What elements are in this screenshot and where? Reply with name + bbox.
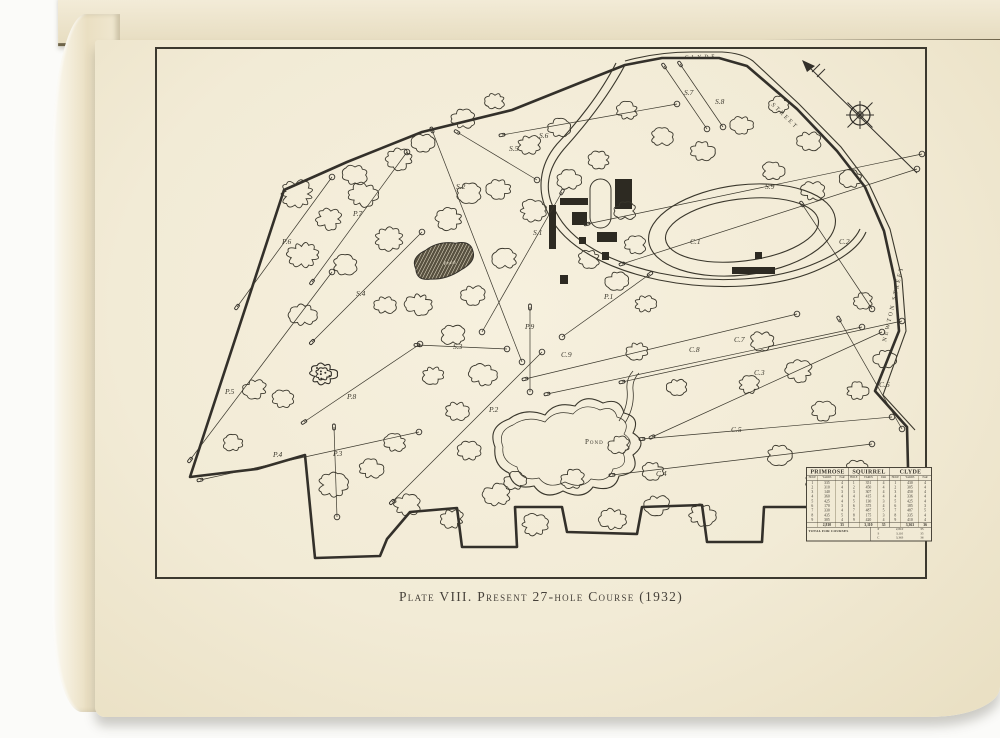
scorecard-cell: PAR — [919, 476, 931, 480]
fairway-line — [482, 192, 562, 332]
fairway-line — [457, 132, 537, 180]
building — [579, 237, 586, 244]
tree-cluster — [598, 508, 626, 529]
hole-label: S.9 — [765, 182, 775, 191]
tree-cluster — [522, 513, 548, 535]
tree-cluster — [223, 434, 242, 450]
fairway-line — [839, 319, 902, 429]
tree-cluster — [411, 134, 435, 152]
course-boundary — [190, 58, 909, 558]
hole-label: S.4 — [356, 289, 366, 298]
hole-label: P.7 — [352, 209, 362, 218]
scorecard-cell: YARDS — [818, 476, 836, 480]
building — [597, 232, 617, 242]
fairway-lines — [187, 61, 925, 520]
tree-cluster — [384, 434, 406, 452]
hole-label: C.8 — [689, 345, 700, 354]
hole-label: C.7 — [734, 335, 745, 344]
tree-cluster — [272, 390, 294, 408]
scorecard-total-row: 3,36336 — [890, 522, 931, 527]
fairway-line — [200, 432, 419, 480]
tree-cluster — [319, 472, 349, 497]
building — [755, 252, 762, 259]
hole-label: P.6 — [281, 237, 291, 246]
building — [560, 275, 568, 284]
hole-label: S.6 — [539, 131, 549, 140]
tree-cluster — [616, 101, 637, 119]
tree-cluster — [457, 441, 481, 460]
fairway-line — [312, 232, 422, 342]
tree-cluster — [763, 162, 785, 180]
tree-cluster — [374, 297, 396, 314]
north-arrow-icon — [802, 60, 917, 173]
tree-cluster — [605, 272, 629, 290]
hole-label: C.1 — [690, 237, 701, 246]
mound-dot — [320, 370, 322, 372]
scorecard-cell: PAR — [877, 476, 889, 480]
tree-cluster — [652, 128, 674, 146]
fairway-line — [547, 327, 862, 394]
hole-label: C.4 — [656, 469, 667, 478]
tree-cluster — [286, 242, 318, 267]
clubhouse-buildings — [549, 179, 775, 284]
scorecard-cell: 35 — [836, 523, 848, 528]
hole-label: P.9 — [524, 322, 534, 331]
tree-cluster — [557, 170, 582, 190]
tree-cluster — [801, 182, 825, 201]
building — [732, 267, 775, 274]
scorecard-cell: HOLE — [849, 476, 860, 480]
tree-cluster — [334, 254, 357, 275]
scorecard-cell: 420 — [859, 517, 877, 522]
tree-cluster — [847, 382, 869, 400]
scorecard-cell — [890, 523, 901, 528]
hole-label: P.1 — [603, 292, 613, 301]
scorecard-cell — [807, 523, 818, 528]
scorecard-course: CLYDEHOLEYARDSPAR14304230543450443364542… — [890, 468, 931, 527]
mound-dot — [316, 367, 318, 369]
mound-outline — [310, 363, 338, 385]
scorecard-cell: 305 — [818, 517, 836, 522]
scorecard-cell: PAR — [836, 476, 848, 480]
scorecard-cell: 36 — [919, 523, 931, 528]
small-oval-field — [590, 179, 611, 228]
scorecard-row: 94204 — [849, 517, 890, 522]
hole-label: S.2 — [456, 182, 466, 191]
book-photo: P.1P.2P.3P.4P.5P.6P.7P.8P.9S.1S.2S.3S.4S… — [0, 0, 1000, 738]
fairway-line — [190, 272, 332, 460]
hole-label: S.3 — [453, 342, 463, 351]
scorecard-cell: YARDS — [859, 476, 877, 480]
fairway-line — [642, 417, 892, 439]
fairway-line — [802, 204, 872, 309]
scorecard-cell: 4 — [877, 517, 889, 522]
tree-clusters — [223, 94, 896, 536]
building — [615, 179, 632, 209]
tree-cluster — [446, 402, 470, 420]
street-label: CLYDE — [685, 54, 718, 61]
scorecard-cell: HOLE — [890, 476, 901, 480]
scorecard-cell: YARDS — [901, 476, 919, 480]
mound-dot — [320, 373, 322, 375]
tree-cluster — [485, 94, 505, 109]
scorecard-cell: 3,363 — [901, 523, 919, 528]
tree-cluster — [739, 376, 759, 394]
tree-cluster — [635, 296, 656, 312]
tree-cluster — [348, 182, 378, 207]
tree-cluster — [588, 151, 609, 169]
hole-label: P.4 — [272, 450, 282, 459]
scorecard-course-name: PRIMROSE — [807, 468, 848, 476]
map-labels: P.1P.2P.3P.4P.5P.6P.7P.8P.9S.1S.2S.3S.4S… — [224, 54, 905, 478]
hole-label: P.8 — [346, 392, 356, 401]
scorecard-cell: 9 — [849, 517, 860, 522]
fairway-line — [664, 66, 707, 129]
scorecard-row: 94104 — [890, 517, 931, 522]
tree-cluster — [375, 227, 402, 251]
tree-cluster — [518, 136, 541, 155]
tree-cluster — [812, 401, 836, 421]
tree-cluster — [461, 286, 485, 306]
scorecard-cell: 36 — [913, 536, 931, 540]
tree-cluster — [520, 199, 546, 222]
hole-label: S.8 — [715, 97, 725, 106]
building — [602, 252, 609, 260]
tree-cluster — [404, 294, 432, 316]
tree-cluster — [548, 118, 571, 136]
scorecard-footer-label: TOTAL FOR COURSES — [807, 528, 870, 541]
mound-dot — [320, 378, 322, 380]
scorecard-cell: 9 — [890, 517, 901, 522]
scorecard-cell: 410 — [901, 517, 919, 522]
scorecard-total-row: 2,81035 — [807, 522, 848, 527]
mound-inner — [316, 368, 331, 380]
tree-cluster — [626, 343, 648, 360]
hole-label: C.2 — [839, 237, 850, 246]
scorecard-course-name: SQUIRREL — [849, 468, 890, 476]
plate-caption: Plate VIII. Present 27-hole Course (1932… — [155, 589, 927, 605]
hole-label: S.7 — [684, 88, 694, 97]
hole-label: C.9 — [561, 350, 572, 359]
tree-cluster — [561, 469, 585, 488]
tree-cluster — [785, 360, 812, 383]
building — [560, 198, 588, 205]
tree-cluster — [797, 132, 821, 151]
fairway-line — [392, 352, 542, 502]
scorecard-footer-row: C3,36336 — [871, 536, 932, 540]
scorecard-course-name: CLYDE — [890, 468, 931, 476]
scorecard-cell: 3,363 — [886, 536, 913, 540]
small-pond — [412, 239, 476, 282]
tree-cluster — [243, 380, 267, 399]
hole-label: C.3 — [754, 368, 765, 377]
hole-label: S.1 — [533, 228, 542, 237]
scorecard-cell: C — [871, 536, 887, 540]
tree-cluster — [730, 117, 753, 135]
tree-cluster — [435, 207, 461, 230]
tree-cluster — [288, 304, 317, 325]
tree-cluster — [486, 180, 511, 200]
scorecard-cell: 3,110 — [859, 523, 877, 528]
hole-label: P.2 — [488, 405, 498, 414]
clubhouse-drive-edge — [541, 63, 866, 287]
tree-cluster — [422, 367, 443, 384]
tree-cluster — [385, 148, 412, 171]
scorecard-cell: 2,810 — [818, 523, 836, 528]
tree-cluster — [767, 445, 792, 465]
hole-label: C.5 — [731, 425, 742, 434]
scorecard-table: PRIMROSEHOLEYARDSPAR13354231043140343604… — [806, 467, 932, 541]
scorecard-cell: HOLE — [807, 476, 818, 480]
hole-label: C.6 — [879, 380, 890, 389]
tree-cluster — [492, 248, 516, 268]
scorecard-row: 93054 — [807, 517, 848, 522]
scorecard-cell: 9 — [807, 517, 818, 522]
scorecard-cell: 4 — [836, 517, 848, 522]
scorecard-cell — [849, 523, 860, 528]
tree-cluster — [316, 208, 342, 230]
pond-label: Pond — [585, 438, 604, 446]
tree-cluster — [578, 250, 599, 268]
hole-label: P.5 — [224, 387, 234, 396]
clyde-street-road — [625, 52, 915, 430]
mound-dot — [329, 375, 331, 377]
fairway-line — [562, 274, 650, 337]
fairway-line — [502, 104, 677, 135]
scorecard-footer-values: P2,81035S3,11035C3,36336 — [870, 528, 931, 541]
mound-dot — [324, 372, 326, 374]
tree-cluster — [342, 165, 367, 184]
tree-cluster — [666, 379, 686, 395]
building — [549, 205, 556, 249]
rock-mound — [310, 363, 338, 385]
fairway-line — [304, 344, 420, 422]
hole-label: S.5 — [509, 144, 519, 153]
scorecard-total-row: 3,11035 — [849, 522, 890, 527]
tree-cluster — [624, 236, 645, 254]
tree-cluster — [691, 142, 716, 161]
scorecard-cell: 35 — [877, 523, 889, 528]
tree-cluster — [468, 364, 497, 386]
scorecard-cell: 4 — [919, 517, 931, 522]
scorecard-course: SQUIRRELHOLEYARDSPAR13514245043307444154… — [849, 468, 891, 527]
scorecard-course: PRIMROSEHOLEYARDSPAR13354231043140343604… — [807, 468, 849, 527]
hole-label: P.3 — [332, 449, 342, 458]
tree-cluster — [359, 459, 384, 478]
